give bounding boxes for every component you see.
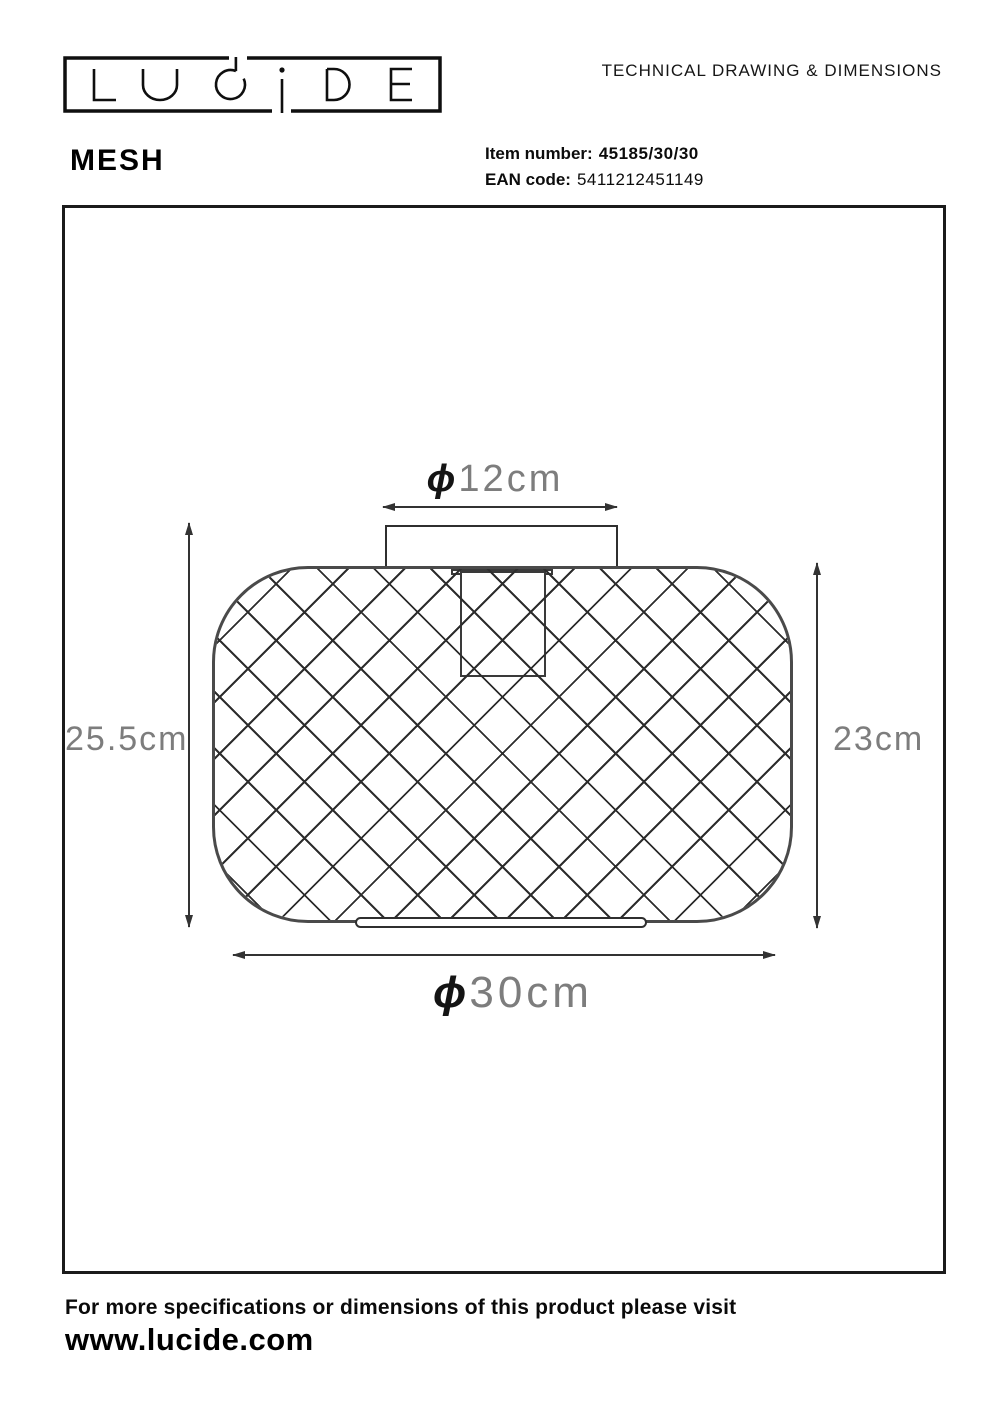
product-meta: Item number:45185/30/30 EAN code:5411212… — [485, 141, 704, 193]
diameter-symbol: ϕ — [427, 458, 456, 500]
dimension-value-top: 12cm — [458, 458, 563, 500]
technical-drawing-sheet: TECHNICAL DRAWING & DIMENSIONS MESH Item… — [0, 0, 1000, 1414]
dimension-label-top: ϕ12cm — [375, 458, 615, 501]
lamp-canopy-plate — [385, 525, 618, 568]
product-name: MESH — [70, 144, 165, 178]
lucide-logo — [63, 56, 442, 118]
dimension-label-right: 23cm — [833, 720, 993, 759]
ean-code-label: EAN code: — [485, 170, 571, 189]
dimension-label-bottom: ϕ30cm — [363, 968, 663, 1018]
logo-letter-l — [94, 69, 116, 100]
logo-border-left — [65, 58, 272, 111]
logo-letter-i-dot — [279, 67, 284, 72]
logo-letter-e — [391, 69, 412, 100]
item-number-row: Item number:45185/30/30 — [485, 141, 704, 167]
dimension-arrow-right — [816, 563, 818, 928]
drawing-frame: ϕ12cm 25.5cm 23cm ϕ30cm — [62, 205, 946, 1274]
footer-note: For more specifications or dimensions of… — [65, 1296, 736, 1320]
lamp-bottom-ring — [355, 917, 647, 928]
dimension-value-right: 23cm — [833, 720, 924, 758]
logo-border-right — [247, 58, 440, 111]
logo-letter-u — [143, 69, 177, 100]
lamp-mesh-body — [212, 566, 793, 923]
ean-code-row: EAN code:5411212451149 — [485, 167, 704, 193]
ean-code-value: 5411212451149 — [577, 170, 704, 189]
dimension-value-left: 25.5cm — [65, 720, 189, 758]
document-title: TECHNICAL DRAWING & DIMENSIONS — [602, 61, 942, 81]
logo-letter-c — [216, 57, 245, 99]
dimension-arrow-top — [383, 506, 617, 508]
diameter-symbol: ϕ — [433, 968, 466, 1017]
item-number-label: Item number: — [485, 144, 593, 163]
dimension-arrow-bottom — [233, 954, 775, 956]
mesh-pattern — [215, 569, 790, 920]
dimension-value-bottom: 30cm — [469, 968, 593, 1017]
dimension-label-left: 25.5cm — [65, 720, 179, 759]
footer-website: www.lucide.com — [65, 1322, 314, 1358]
item-number-value: 45185/30/30 — [599, 144, 699, 163]
logo-letter-d — [327, 69, 349, 100]
